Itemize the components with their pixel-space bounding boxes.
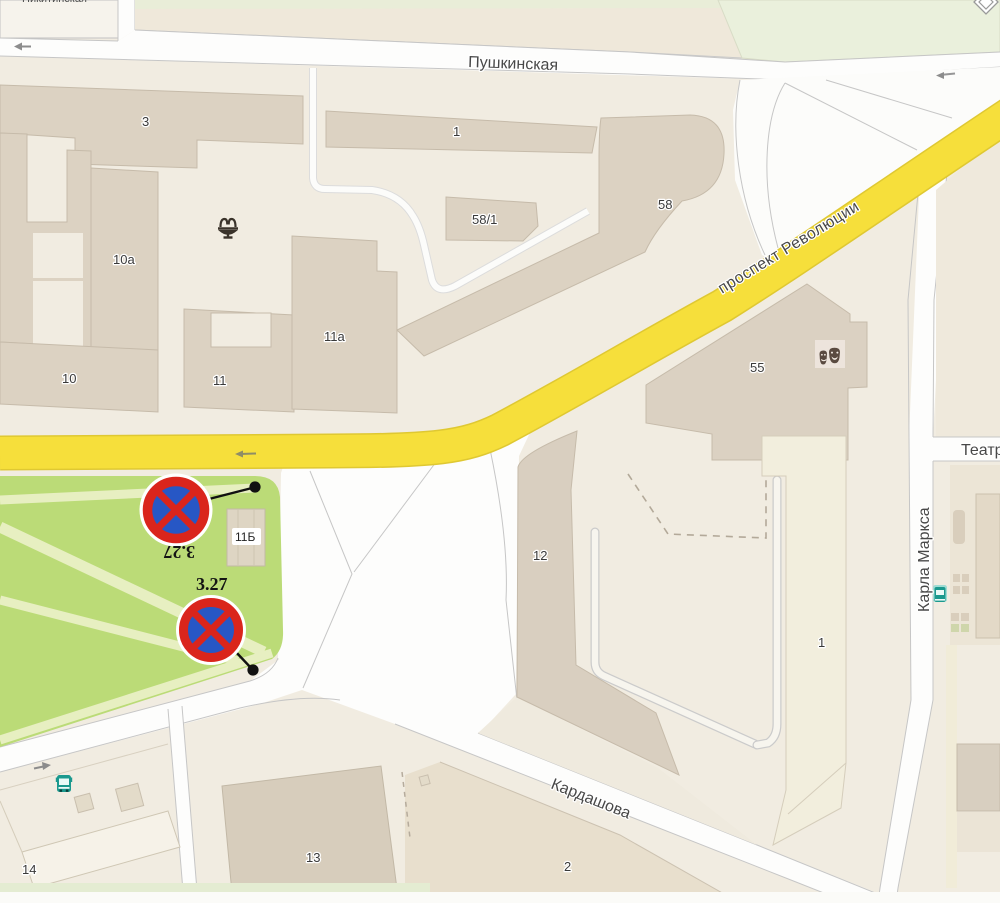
svg-text:1: 1: [818, 635, 825, 650]
svg-text:3: 3: [142, 114, 149, 129]
svg-text:10а: 10а: [113, 252, 135, 267]
svg-text:Театральная: Театральная: [961, 442, 1000, 459]
svg-text:58/1: 58/1: [472, 212, 497, 227]
svg-text:11Б: 11Б: [235, 530, 255, 544]
svg-text:2: 2: [564, 859, 571, 874]
svg-text:Карла Маркса: Карла Маркса: [916, 507, 933, 612]
svg-text:10: 10: [62, 371, 76, 386]
svg-text:55: 55: [750, 360, 764, 375]
svg-text:1: 1: [453, 124, 460, 139]
svg-text:12: 12: [533, 548, 547, 563]
svg-text:Никитинская: Никитинская: [22, 0, 87, 5]
svg-text:11а: 11а: [324, 329, 345, 344]
svg-text:13: 13: [306, 850, 320, 865]
svg-text:Пушкинская: Пушкинская: [468, 54, 559, 74]
svg-text:3.27: 3.27: [196, 574, 228, 594]
svg-text:14: 14: [22, 862, 36, 877]
svg-text:11: 11: [213, 373, 227, 388]
svg-text:58: 58: [658, 197, 672, 212]
svg-text:3.27: 3.27: [164, 542, 196, 562]
